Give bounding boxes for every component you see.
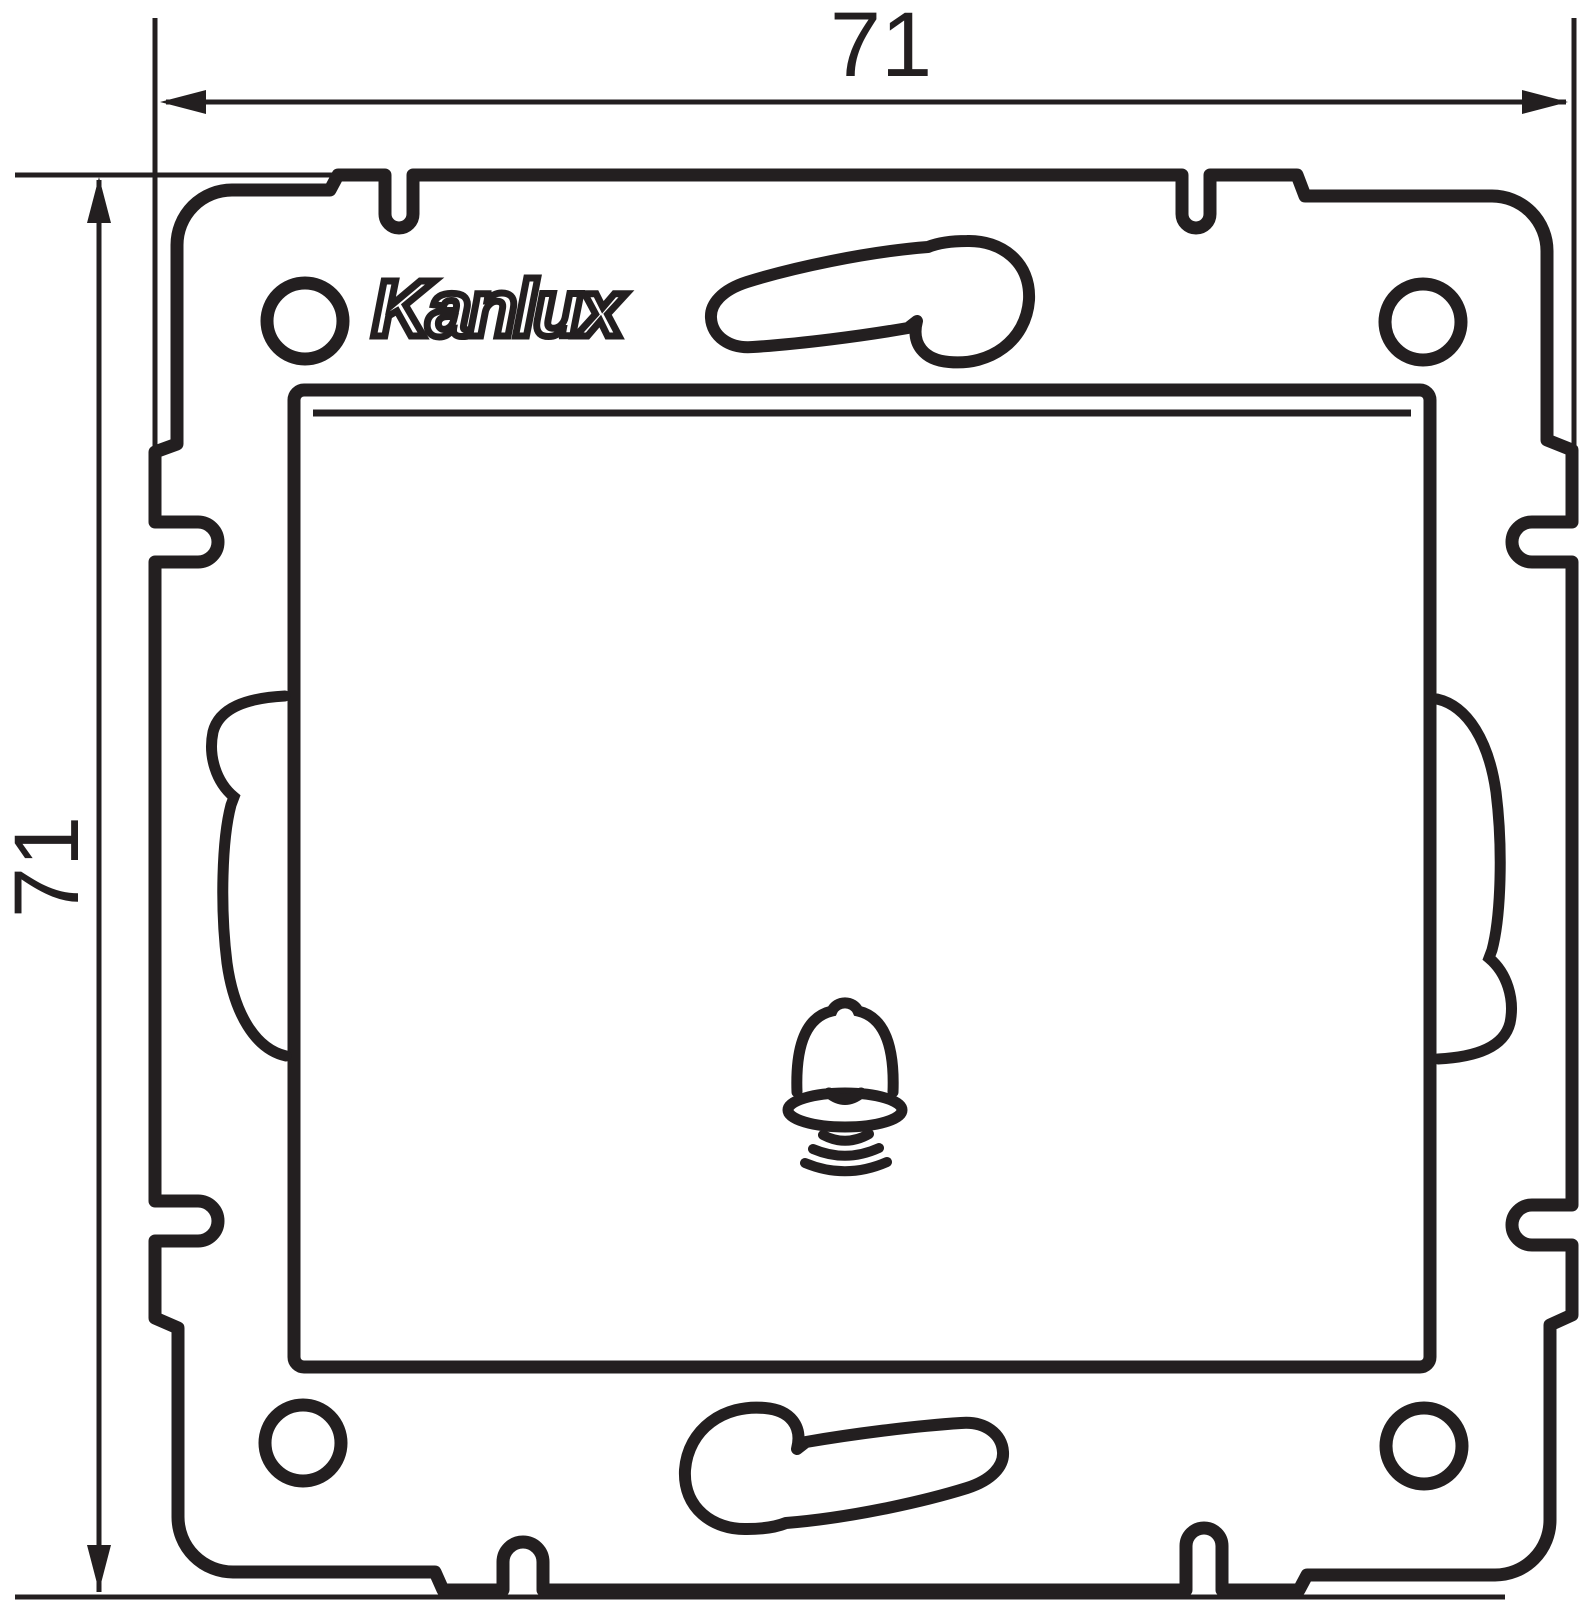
push-button-face [294,390,1430,1367]
mounting-hole-top-right [1385,284,1461,360]
bell-wave-3 [805,1162,887,1171]
dim-left-label: 71 [0,816,98,918]
bell-wave-1 [823,1134,869,1141]
mounting-hole-bottom-right [1386,1408,1462,1484]
button-latch-left [212,696,286,1056]
arrowhead-down-icon [87,1545,111,1591]
technical-drawing-page: 71 71 Kanlux [0,0,1582,1600]
bell-dome [797,1003,893,1092]
dim-top-label: 71 [830,0,932,96]
kanlux-logo: Kanlux [372,264,627,353]
button-latch-right [1437,699,1511,1059]
arrowhead-up-icon [87,177,111,223]
fixing-slot-bottom [685,1408,1003,1529]
bell-wave-2 [813,1148,879,1156]
fixing-slot-top [711,241,1029,362]
arrowhead-left-icon [160,90,206,114]
dimension-drawing: 71 71 Kanlux [0,0,1582,1600]
mounting-hole-bottom-left [265,1405,341,1481]
mounting-hole-top-left [267,283,343,359]
top-width-dimension: 71 [155,0,1574,450]
arrowhead-right-icon [1522,90,1568,114]
bell-clapper [829,1093,861,1100]
bell-icon [788,1003,902,1171]
